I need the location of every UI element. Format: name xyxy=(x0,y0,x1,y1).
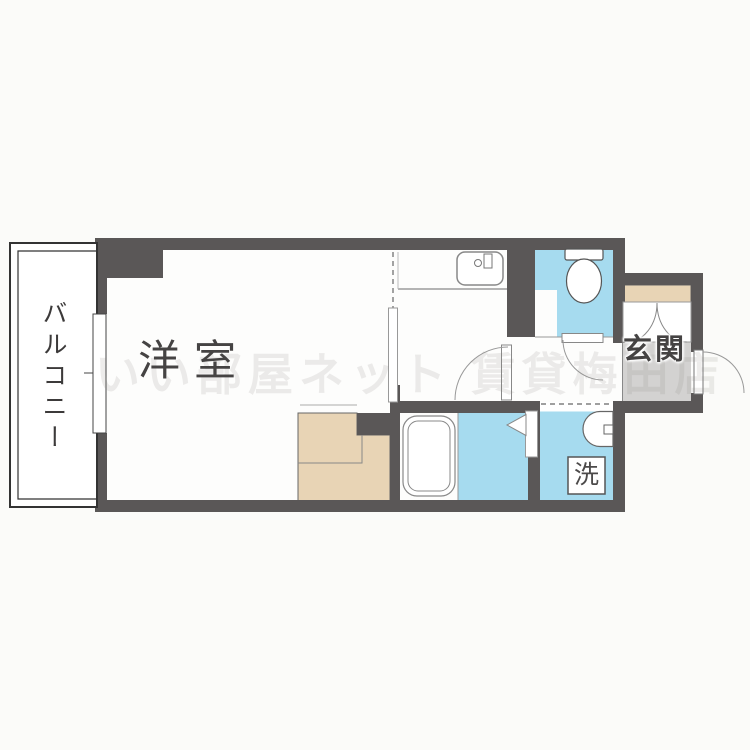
toilet-door-leaf xyxy=(562,334,603,343)
faucet-icon xyxy=(475,260,482,267)
faucet-base-icon xyxy=(484,254,492,268)
toilet-icon xyxy=(567,259,602,303)
kitchen-sink-icon xyxy=(457,252,503,285)
washing-machine-label: 洗 xyxy=(568,457,605,494)
bath-door-panel xyxy=(526,411,538,457)
floorplan-canvas: いい部屋ネット 賃貸梅田店 バルコニー 洋室 玄関 洗 xyxy=(0,0,750,750)
bathtub-icon xyxy=(403,416,455,496)
washbasin-tab xyxy=(604,425,613,434)
entrance-label: 玄関 xyxy=(623,336,687,365)
balcony-label: バルコニー xyxy=(40,300,65,455)
toilet-tank-icon xyxy=(565,249,603,260)
shoe-cabinet xyxy=(623,285,691,302)
western-room-label: 洋室 xyxy=(138,340,250,382)
